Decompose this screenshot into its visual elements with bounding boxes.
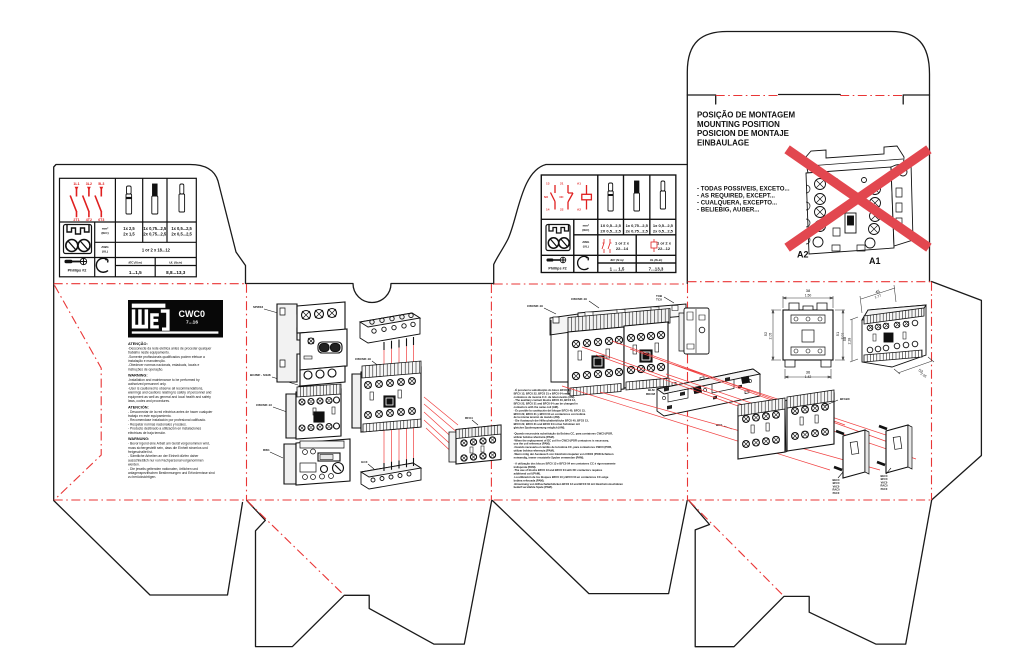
svg-text:bobina reforzada (PAM).: bobina reforzada (PAM). bbox=[514, 478, 545, 482]
svg-text:3L2: 3L2 bbox=[86, 182, 92, 186]
svg-text:mm²: mm² bbox=[102, 227, 109, 231]
svg-text:(IEC): (IEC) bbox=[101, 231, 108, 235]
svg-text:-The use of blocks BFC0 13 and: -The use of blocks BFC0 13 and BFC0 04 w… bbox=[514, 468, 603, 472]
svg-text:contactors with the same coil: contactors with the same coil (AM). bbox=[514, 405, 559, 409]
svg-text:- Die Austausch der Hilfsschal: - Die Austausch der Hilfsschalterblöcke … bbox=[514, 419, 589, 423]
svg-text:BF1B0: BF1B0 bbox=[840, 397, 850, 401]
svg-text:2x 1,5: 2x 1,5 bbox=[123, 232, 135, 237]
svg-text:AWG: AWG bbox=[101, 245, 109, 249]
svg-text:mm²: mm² bbox=[583, 224, 589, 228]
svg-text:52: 52 bbox=[763, 331, 768, 336]
svg-text:SPW16: SPW16 bbox=[253, 305, 264, 309]
svg-text:1.50: 1.50 bbox=[805, 294, 812, 298]
svg-text:6T3: 6T3 bbox=[98, 218, 104, 222]
svg-text:use the coil reference (PAM).: use the coil reference (PAM). bbox=[514, 442, 551, 446]
svg-text:1x 0,5...2,5: 1x 0,5...2,5 bbox=[171, 226, 192, 231]
svg-text:PAC0: PAC0 bbox=[881, 487, 888, 491]
svg-text:1X 0,5...2,5: 1X 0,5...2,5 bbox=[600, 223, 621, 228]
svg-text:(IEC): (IEC) bbox=[582, 228, 589, 232]
svg-text:1 ... 1,5: 1 ... 1,5 bbox=[610, 267, 625, 272]
svg-text:7...16: 7...16 bbox=[186, 320, 198, 326]
svg-text:laws, codes and procedures.: laws, codes and procedures. bbox=[128, 399, 170, 403]
svg-text:1x 0,75...2,5: 1x 0,75...2,5 bbox=[626, 223, 649, 228]
svg-text:BC2MF - S3H8: BC2MF - S3H8 bbox=[250, 373, 271, 377]
svg-text:- AS REQUIRED, EXCEPT...: - AS REQUIRED, EXCEPT... bbox=[697, 193, 775, 200]
svg-text:CWCMF-13: CWCMF-13 bbox=[256, 403, 272, 407]
svg-text:2x 0,75...2,5: 2x 0,75...2,5 bbox=[626, 229, 649, 234]
svg-text:CWCMF-19: CWCMF-19 bbox=[571, 297, 587, 301]
svg-text:1 or 2 x: 1 or 2 x bbox=[657, 241, 672, 246]
svg-text:2.28: 2.28 bbox=[848, 338, 852, 345]
svg-text:Phillips #2: Phillips #2 bbox=[548, 267, 566, 271]
svg-text:22...12: 22...12 bbox=[658, 246, 671, 251]
svg-text:2X 0,5...2,5: 2X 0,5...2,5 bbox=[600, 229, 621, 234]
svg-text:gleicher Spulenspannung möglic: gleicher Spulenspannung möglich (AM). bbox=[514, 425, 566, 429]
svg-text:GCX: GCX bbox=[361, 460, 368, 464]
svg-text:eléctricas de baja tensión.: eléctricas de baja tensión. bbox=[128, 431, 166, 435]
svg-text:bedarf verstärkte Spule (PAM).: bedarf verstärkte Spule (PAM). bbox=[514, 485, 553, 489]
svg-text:IEC (N.m): IEC (N.m) bbox=[610, 258, 623, 262]
svg-text:notwendig, immer ersatzteile S: notwendig, immer ersatzteile Spulen verw… bbox=[514, 455, 585, 459]
svg-text:RW1: RW1 bbox=[263, 448, 270, 452]
svg-text:utilizar bobina referencia (PA: utilizar bobina referencia (PAM). bbox=[514, 449, 555, 453]
svg-text:A1: A1 bbox=[577, 181, 581, 185]
svg-text:BFC0 13, BFC0 22, BFC0 31 e BF: BFC0 13, BFC0 22, BFC0 31 e BFC0 04 em bbox=[514, 391, 568, 395]
svg-text:POSIÇÃO DE MONTAGEM: POSIÇÃO DE MONTAGEM bbox=[697, 111, 795, 120]
svg-text:BFC0 22, BFC0 31 und BFC0 04 i: BFC0 22, BFC0 31 und BFC0 04 ist bei Sch… bbox=[514, 422, 580, 426]
svg-text:1 or 2 x 18...12: 1 or 2 x 18...12 bbox=[142, 248, 171, 253]
svg-text:(UL): (UL) bbox=[102, 250, 108, 254]
svg-text:IEC (N.m): IEC (N.m) bbox=[129, 261, 143, 265]
svg-text:-La utilización de los bloques: -La utilización de los bloques BFC0 13 y… bbox=[514, 475, 609, 479]
svg-text:BFC0 22, BFC0 31 and BFC0 04 c: BFC0 22, BFC0 31 and BFC0 04 can be chan… bbox=[514, 402, 579, 406]
svg-text:MOUNTING POSITION: MOUNTING POSITION bbox=[697, 120, 780, 129]
svg-text:EINBAULAGE: EINBAULAGE bbox=[697, 139, 749, 148]
svg-text:8,8...13,3: 8,8...13,3 bbox=[166, 270, 186, 275]
svg-text:1L1: 1L1 bbox=[73, 182, 79, 186]
svg-text:- BELIEBIG, AUẞER...: - BELIEBIG, AUẞER... bbox=[697, 207, 760, 214]
svg-text:22: 22 bbox=[560, 207, 564, 211]
svg-text:ATENÇÃO:: ATENÇÃO: bbox=[128, 341, 148, 346]
svg-text:A2: A2 bbox=[797, 250, 809, 260]
svg-text:UL (lb.in): UL (lb.in) bbox=[650, 258, 663, 262]
svg-text:1...1,5: 1...1,5 bbox=[129, 270, 142, 275]
svg-text:-When the replacement of DC co: -When the replacement of DC coil for CWC… bbox=[514, 438, 609, 442]
svg-text:- A utilização dos blocos BFC0: - A utilização dos blocos BFC0 13 e BFC0… bbox=[514, 461, 616, 465]
svg-text:36: 36 bbox=[806, 370, 811, 375]
svg-text:1.42: 1.42 bbox=[805, 375, 812, 379]
svg-text:5L3: 5L3 bbox=[98, 182, 104, 186]
svg-text:-Wenn nötig der Austausch von: -Wenn nötig der Austausch von Gleichstro… bbox=[514, 452, 614, 456]
svg-text:UL (lb.in): UL (lb.in) bbox=[169, 261, 182, 265]
svg-text:38: 38 bbox=[806, 288, 811, 293]
svg-text:2x 0,75...2,5: 2x 0,75...2,5 bbox=[143, 232, 166, 237]
svg-text:CWCMF-19: CWCMF-19 bbox=[355, 357, 371, 361]
svg-text:contatores de mesma C.C. de te: contatores de mesma C.C. de teleconexão … bbox=[514, 395, 576, 399]
svg-text:7...13,3: 7...13,3 bbox=[649, 267, 664, 272]
svg-text:-Quando necessária substituiçã: -Quando necessária substituição da Bobin… bbox=[514, 432, 613, 436]
svg-text:- The auxiliary contact blocks: - The auxiliary contact blocks BFC0 40, … bbox=[514, 398, 576, 402]
svg-text:-Einsetzung von Hilfsschalterb: -Einsetzung von Hilfsschalterblöcken BFC… bbox=[514, 482, 624, 486]
svg-text:BFC0 22, BFC0 31 y BFC0 04 en: BFC0 22, BFC0 31 y BFC0 04 en contactore… bbox=[514, 412, 586, 416]
svg-text:51: 51 bbox=[835, 331, 840, 336]
svg-text:RFX4: RFX4 bbox=[465, 416, 473, 420]
svg-text:A2: A2 bbox=[577, 207, 581, 211]
svg-text:2T1: 2T1 bbox=[73, 218, 79, 222]
svg-text:2x 0,5...2,5: 2x 0,5...2,5 bbox=[171, 232, 192, 237]
svg-text:-Cuando necesaria el cambio de: -Cuando necesaria el cambio de la bobina… bbox=[514, 445, 613, 449]
svg-text:utilizar bobina referência (PA: utilizar bobina referência (PAM). bbox=[514, 435, 555, 439]
svg-text:additional coil (PAM).: additional coil (PAM). bbox=[514, 472, 541, 476]
svg-text:- TODAS POSSIVEIS, EXCETO...: - TODAS POSSIVEIS, EXCETO... bbox=[697, 186, 790, 193]
svg-text:58: 58 bbox=[842, 336, 847, 341]
svg-text:1x 0,5...2,5: 1x 0,5...2,5 bbox=[653, 223, 674, 228]
svg-text:22...14: 22...14 bbox=[616, 246, 629, 251]
svg-text:AWG: AWG bbox=[582, 240, 590, 244]
svg-text:A1: A1 bbox=[869, 256, 881, 266]
svg-text:- CUALQUERA, EXCEPTO...: - CUALQUERA, EXCEPTO... bbox=[697, 200, 777, 207]
svg-text:14: 14 bbox=[546, 207, 550, 211]
svg-text:TCX: TCX bbox=[656, 298, 662, 302]
svg-text:Phillips #2: Phillips #2 bbox=[68, 269, 87, 273]
svg-text:2.05: 2.05 bbox=[769, 333, 773, 340]
svg-text:NC: NC bbox=[560, 195, 564, 199]
svg-text:1 or 2 x: 1 or 2 x bbox=[615, 241, 630, 246]
svg-text:WARNING:: WARNING: bbox=[128, 374, 148, 378]
svg-text:WARNUNG:: WARNUNG: bbox=[128, 437, 149, 441]
svg-text:indisposta (PAM).: indisposta (PAM). bbox=[514, 465, 537, 469]
svg-text:1x 0,75...2,5: 1x 0,75...2,5 bbox=[143, 226, 166, 231]
svg-text:4T2: 4T2 bbox=[86, 218, 92, 222]
svg-text:1x 2,5: 1x 2,5 bbox=[123, 226, 135, 231]
svg-text:21: 21 bbox=[560, 181, 564, 185]
svg-text:instruções de operação.: instruções de operação. bbox=[128, 367, 163, 371]
svg-text:(UL): (UL) bbox=[583, 245, 589, 249]
svg-text:- Es posible la sustitución de: - Es posible la sustitución del bloque B… bbox=[514, 408, 586, 412]
svg-text:CWCMF-19: CWCMF-19 bbox=[527, 304, 543, 308]
svg-text:PAC0: PAC0 bbox=[833, 491, 840, 495]
svg-text:zu berücksichtigen.: zu berücksichtigen. bbox=[128, 475, 156, 479]
svg-text:de la misma tensión de mando (: de la misma tensión de mando (AM). bbox=[514, 415, 561, 419]
svg-text:ATENCIÓN:: ATENCIÓN: bbox=[128, 404, 149, 409]
svg-text:CWC0: CWC0 bbox=[179, 309, 206, 319]
svg-text:POSICION DE MONTAJE: POSICION DE MONTAJE bbox=[697, 129, 789, 138]
svg-text:2x 0,5...2,5: 2x 0,5...2,5 bbox=[653, 229, 674, 234]
svg-text:RKCM: RKCM bbox=[646, 392, 655, 396]
svg-text:13: 13 bbox=[546, 181, 550, 185]
